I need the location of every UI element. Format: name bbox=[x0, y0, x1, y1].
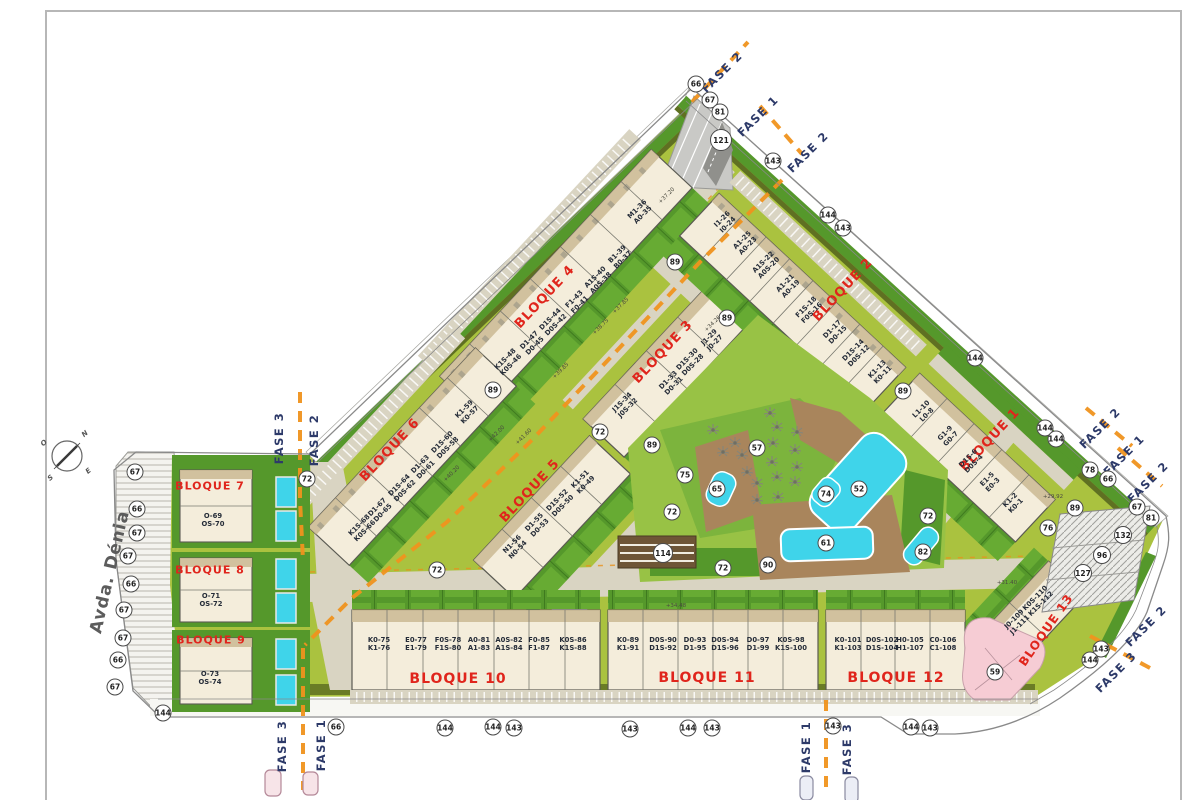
east-parking bbox=[1042, 506, 1150, 612]
compass-rose: N O S E bbox=[44, 433, 90, 479]
compass-graphic bbox=[44, 433, 90, 479]
south-blocks bbox=[350, 590, 1038, 704]
pergola-structure bbox=[618, 536, 696, 568]
site-plan-map bbox=[0, 0, 1200, 800]
site-plan-page: BLOQUE 1BLOQUE 2BLOQUE 3BLOQUE 4BLOQUE 5… bbox=[0, 0, 1200, 800]
parked-cars bbox=[265, 770, 858, 800]
west-blocks bbox=[172, 455, 310, 712]
